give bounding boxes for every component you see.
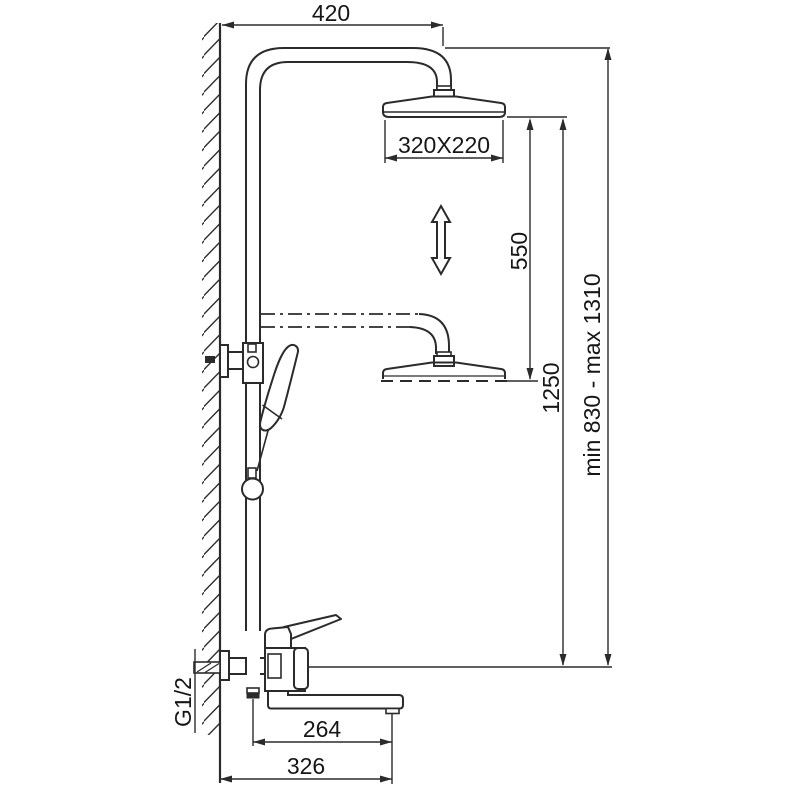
wall-anchor-mark: [205, 356, 215, 363]
dim-adjust-travel: 550: [506, 118, 534, 380]
inlet-flange: [220, 651, 229, 680]
dim-overall-reach-label: 326: [287, 753, 325, 779]
dim-head-size-label: 320X220: [398, 132, 490, 158]
spout-aerator: [386, 709, 399, 714]
shower-technical-drawing: 420 320X220 550: [0, 0, 800, 800]
hand-shower-hose: [257, 429, 269, 471]
dim-top-arm-offset-label: 420: [312, 0, 350, 26]
outlet-valve: [247, 693, 260, 699]
dim-spout-reach-label: 264: [303, 716, 342, 742]
bath-spout: [268, 691, 403, 709]
mixer-faucet: [194, 615, 403, 714]
mixer-lever: [284, 615, 341, 641]
drawing-page: 420 320X220 550: [0, 0, 800, 800]
dim-column-height: 1250: [538, 118, 567, 666]
dim-adjust-travel-label: 550: [506, 232, 532, 270]
dim-overall-height: min 830 - max 1310: [579, 48, 612, 666]
dim-overall-height-label: min 830 - max 1310: [579, 273, 605, 476]
dim-inlet-thread-label: G1/2: [170, 677, 196, 727]
rain-head-upper: [383, 86, 505, 117]
dim-overall-reach: 326: [220, 753, 392, 783]
mixer-cap: [265, 627, 291, 648]
dim-inlet-thread: G1/2: [170, 649, 196, 733]
height-adjust-arrow-icon: [432, 206, 450, 274]
diverter: [294, 648, 308, 689]
clamp-screw: [248, 357, 259, 368]
wall-hatching: [202, 23, 219, 735]
dim-column-height-label: 1250: [538, 362, 564, 413]
dim-head-size: 320X220: [385, 120, 503, 163]
rain-head-lower-position: [261, 314, 538, 381]
dim-top-arm-offset: 420: [222, 0, 443, 46]
